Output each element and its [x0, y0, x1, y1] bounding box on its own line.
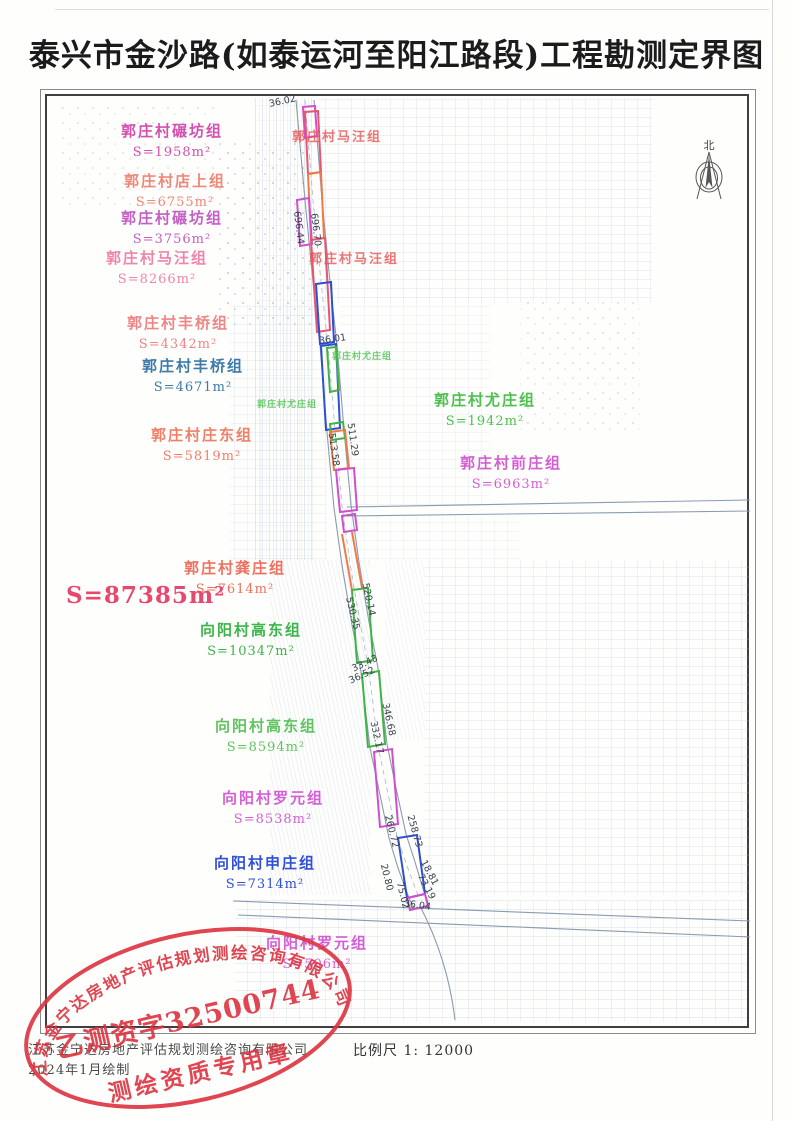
area-label-name: 郭庄村庄东组 [151, 424, 253, 446]
area-label-3: 郭庄村马汪组S=8266m² [106, 247, 208, 291]
area-label-name: 向阳村罗元组 [222, 787, 324, 809]
area-label-value: S=6963m² [460, 474, 562, 496]
area-label-8: 向阳村高东组S=10347m² [200, 619, 302, 663]
total-area-label: S=87385m² [66, 582, 225, 609]
area-label-name: 郭庄村前庄组 [460, 452, 562, 474]
area-label-4: 郭庄村丰桥组S=4342m² [127, 312, 229, 356]
area-label-name: 向阳村申庄组 [214, 852, 316, 874]
stamp-bottom-text: 测绘资质专用章 [106, 1039, 296, 1108]
area-label-2: 郭庄村碾坊组S=3756m² [121, 207, 223, 251]
area-label-name: 郭庄村丰桥组 [127, 312, 229, 334]
area-label-name: 郭庄村丰桥组 [142, 355, 244, 377]
area-label-name: 郭庄村店上组 [124, 170, 226, 192]
measurement-14: 20.80 [378, 863, 395, 892]
onmap-label-3: 郭庄村尤庄组 [257, 397, 317, 410]
area-label-value: S=8266m² [106, 269, 208, 291]
area-label-name: 郭庄村龚庄组 [184, 557, 286, 579]
scanned-map-page: 泰兴市金沙路(如泰运河至阳江路段)工程勘测定界图 [0, 0, 793, 1121]
measurement-4: 513.58 [326, 432, 342, 466]
area-label-name: 向阳村高东组 [215, 715, 317, 737]
area-label-value: S=7314m² [214, 874, 316, 896]
area-label-0: 郭庄村碾坊组S=1958m² [121, 120, 223, 164]
area-label-value: S=1958m² [121, 142, 223, 164]
page-title: 泰兴市金沙路(如泰运河至阳江路段)工程勘测定界图 [0, 30, 793, 75]
area-label-name: 向阳村高东组 [200, 619, 302, 641]
area-label-6: 郭庄村庄东组S=5819m² [151, 424, 253, 468]
area-label-name: 郭庄村尤庄组 [434, 389, 536, 411]
area-label-name: 郭庄村马汪组 [106, 247, 208, 269]
onmap-label-2: 郭庄村尤庄组 [332, 349, 392, 362]
area-label-value: S=10347m² [200, 641, 302, 663]
north-label: 北 [704, 139, 715, 152]
area-label-value: S=4671m² [142, 377, 244, 399]
north-arrow-icon [696, 152, 722, 199]
area-label-value: S=4342m² [127, 334, 229, 356]
area-label-name: 郭庄村碾坊组 [121, 120, 223, 142]
area-label-14: 郭庄村前庄组S=6963m² [460, 452, 562, 496]
area-label-name: 郭庄村碾坊组 [121, 207, 223, 229]
onmap-label-1: 郭庄村马汪组 [309, 248, 399, 267]
onmap-label-0: 郭庄村马汪组 [292, 126, 382, 145]
area-label-value: S=1942m² [434, 411, 536, 433]
area-label-value: S=8538m² [222, 809, 324, 831]
area-label-value: S=5819m² [151, 446, 253, 468]
area-label-9: 向阳村高东组S=8594m² [215, 715, 317, 759]
scan-edge-right [772, 0, 773, 1121]
measurement-13: 258.73 [405, 814, 425, 849]
area-label-13: 郭庄村尤庄组S=1942m² [434, 389, 536, 433]
scan-edge-top [55, 9, 769, 10]
area-label-10: 向阳村罗元组S=8538m² [222, 787, 324, 831]
area-label-11: 向阳村申庄组S=7314m² [214, 852, 316, 896]
area-label-value: S=8594m² [215, 737, 317, 759]
area-label-5: 郭庄村丰桥组S=4671m² [142, 355, 244, 399]
